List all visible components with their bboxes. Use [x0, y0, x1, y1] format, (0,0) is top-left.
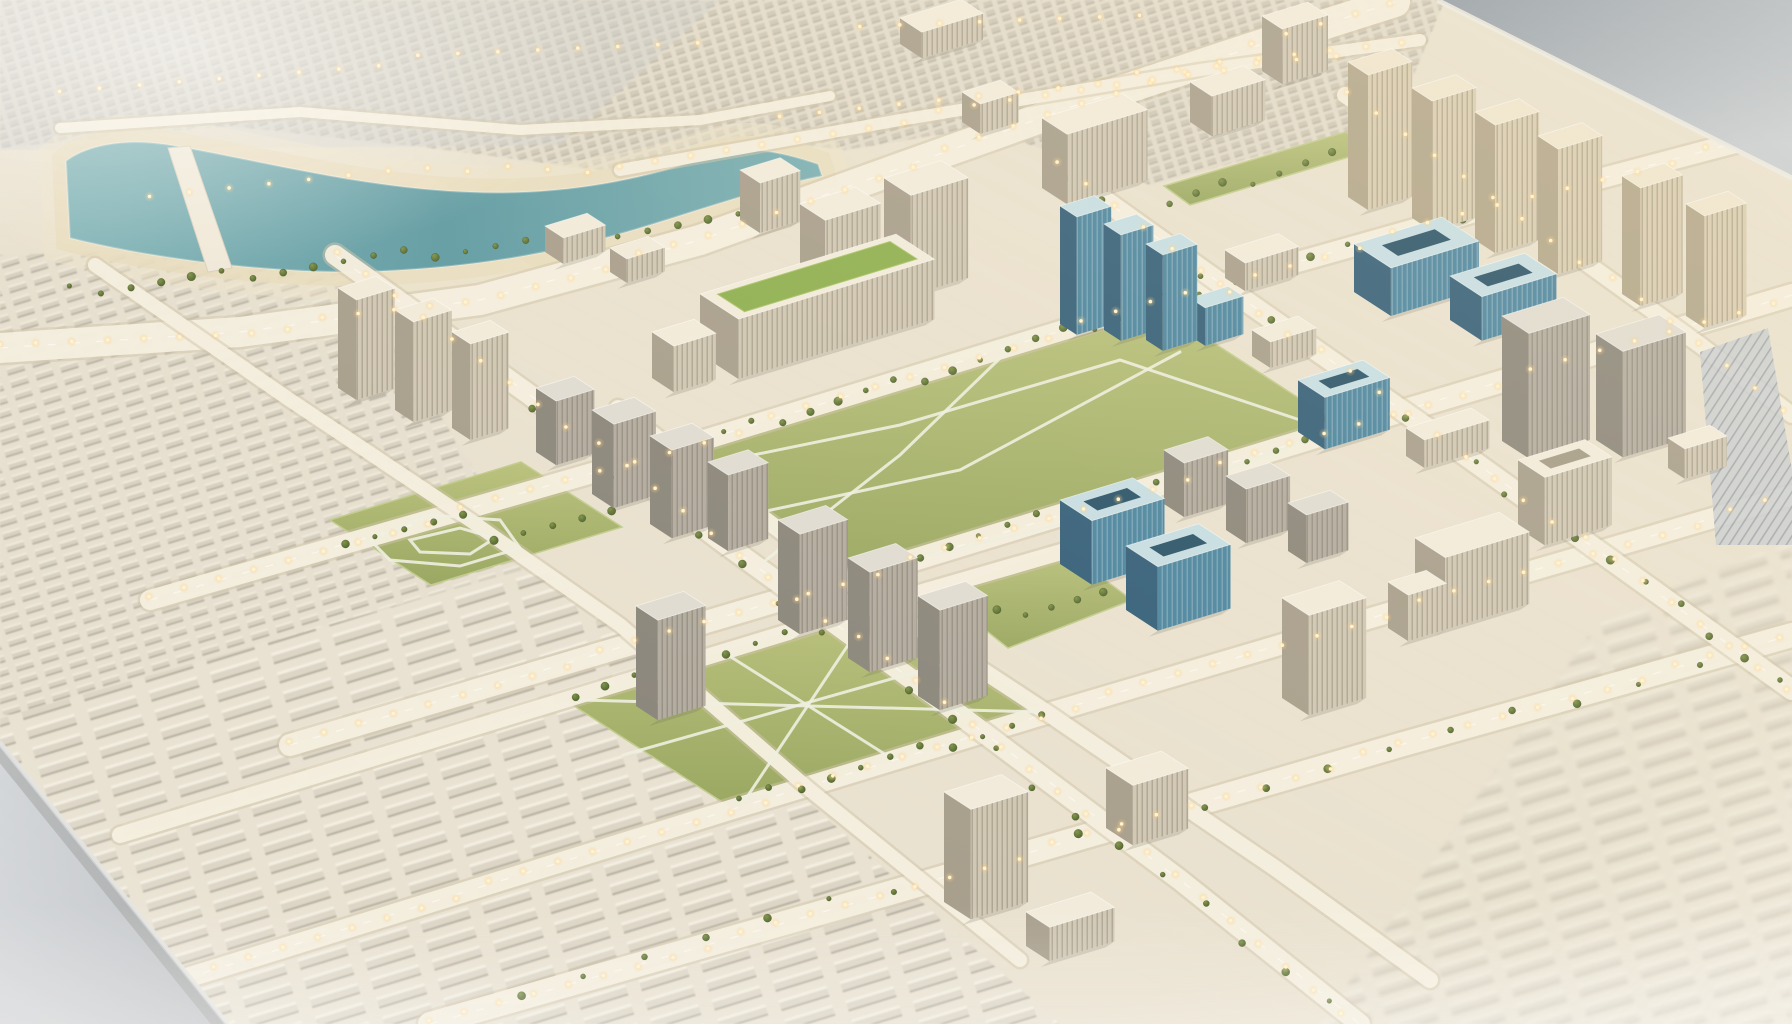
city-model-photo — [0, 0, 1792, 1024]
city-model-scene — [0, 0, 1792, 1024]
photo-overlays — [0, 0, 1792, 1024]
vignette — [0, 0, 1792, 1024]
